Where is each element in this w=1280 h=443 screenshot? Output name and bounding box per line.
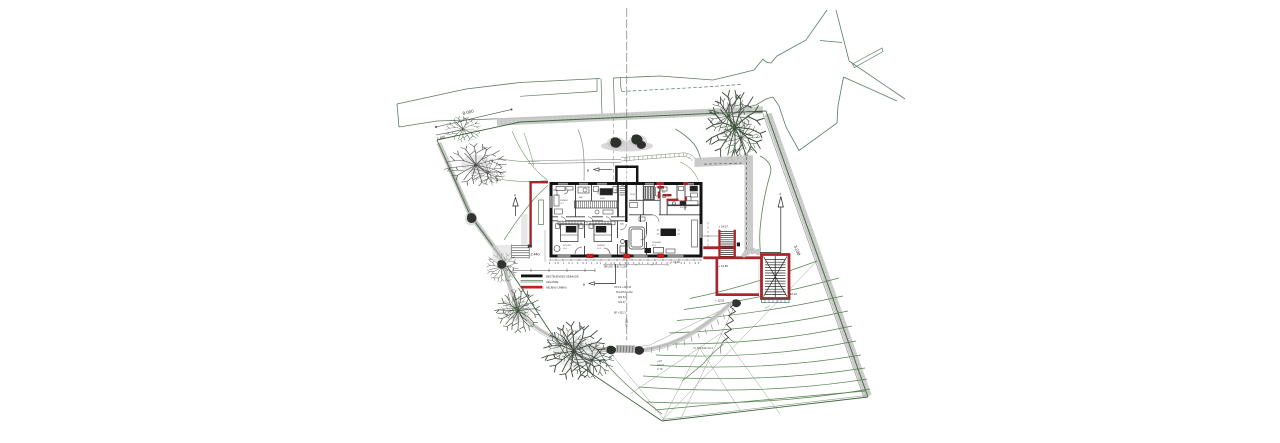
svg-text:FLUR: FLUR xyxy=(630,194,636,196)
svg-text:BESTEHENDES GEBAUDE: BESTEHENDES GEBAUDE xyxy=(546,275,579,279)
svg-text:PLANT.H +322: PLANT.H +322 xyxy=(616,291,633,294)
svg-text:GELANDE: GELANDE xyxy=(546,280,559,284)
svg-text:+ 12.30: + 12.30 xyxy=(671,260,680,264)
svg-text:KUCHE: KUCHE xyxy=(680,207,688,209)
svg-text:47.90: 47.90 xyxy=(657,369,663,371)
svg-text:2.440: 2.440 xyxy=(531,253,540,257)
svg-text:BAD: BAD xyxy=(620,223,625,226)
svg-text:WOHNEN: WOHNEN xyxy=(652,242,662,244)
svg-text:322.63: 322.63 xyxy=(657,365,665,367)
svg-text:A: A xyxy=(779,192,781,196)
svg-text:VV NHASSE 322.1: VV NHASSE 322.1 xyxy=(693,347,714,350)
svg-text:(341.29 / 79.61 / 2.26): (341.29 / 79.61 / 2.26) xyxy=(604,266,627,268)
svg-text:BF +322.3: BF +322.3 xyxy=(614,312,626,315)
svg-text:+322.60: +322.60 xyxy=(625,318,628,327)
svg-text:OK FF +323.10: OK FF +323.10 xyxy=(614,286,632,289)
svg-text:ZIMMER: ZIMMER xyxy=(560,200,568,202)
svg-text:+347: +347 xyxy=(657,361,663,363)
svg-text:BAD: BAD xyxy=(579,196,584,199)
svg-text:A: A xyxy=(514,193,516,197)
svg-text:ELTERN: ELTERN xyxy=(563,245,571,247)
svg-text:B: B xyxy=(587,168,589,172)
svg-text:+ 12.55: + 12.55 xyxy=(719,264,729,268)
svg-text:ZIMMER: ZIMMER xyxy=(597,245,605,247)
svg-text:+ 24.07: + 24.07 xyxy=(719,225,729,229)
svg-text:+ 12.51: + 12.51 xyxy=(715,299,725,303)
svg-text:22.10: 22.10 xyxy=(790,292,797,296)
svg-text:323.47: 323.47 xyxy=(618,301,626,304)
svg-text:322.64: 322.64 xyxy=(618,296,626,299)
svg-text:WC: WC xyxy=(662,192,666,194)
svg-text:KIND: KIND xyxy=(600,198,605,200)
svg-text:NEUBAU UMBAU: NEUBAU UMBAU xyxy=(546,286,567,290)
svg-text:B: B xyxy=(583,282,585,286)
